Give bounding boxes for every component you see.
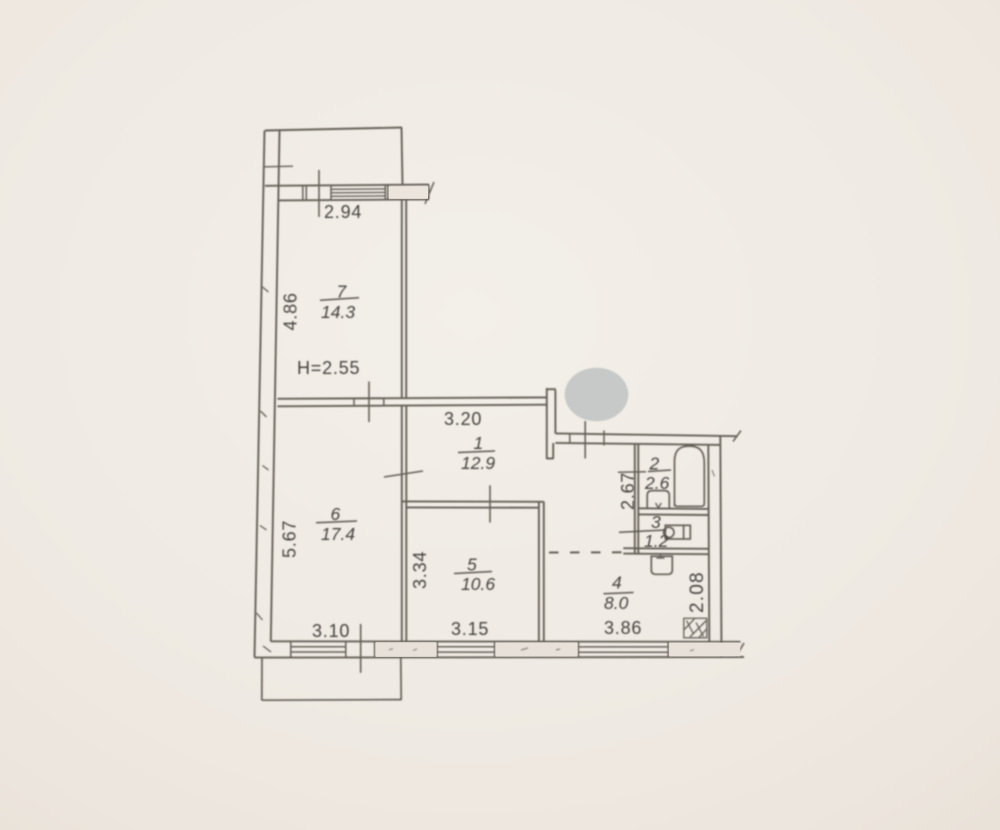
svg-text:1.2: 1.2 xyxy=(644,531,669,551)
svg-text:6: 6 xyxy=(331,504,341,524)
svg-text:1: 1 xyxy=(474,433,484,453)
svg-text:14.3: 14.3 xyxy=(321,302,355,322)
svg-text:3: 3 xyxy=(651,512,661,532)
svg-text:3.15: 3.15 xyxy=(451,619,489,639)
svg-text:12.9: 12.9 xyxy=(461,453,495,473)
svg-text:8.0: 8.0 xyxy=(604,593,629,613)
svg-text:17.4: 17.4 xyxy=(321,524,355,544)
svg-text:10.6: 10.6 xyxy=(461,574,495,594)
svg-text:4: 4 xyxy=(612,573,622,593)
svg-text:5: 5 xyxy=(467,555,477,575)
svg-text:2.67: 2.67 xyxy=(618,472,638,510)
svg-text:2.94: 2.94 xyxy=(324,202,362,222)
svg-text:4.86: 4.86 xyxy=(281,292,301,330)
svg-text:3.10: 3.10 xyxy=(312,621,350,641)
svg-text:5.67: 5.67 xyxy=(280,520,300,558)
svg-text:2.6: 2.6 xyxy=(644,473,670,493)
svg-text:H=2.55: H=2.55 xyxy=(297,358,360,378)
svg-text:3.20: 3.20 xyxy=(444,409,482,429)
svg-text:3.86: 3.86 xyxy=(604,618,642,638)
svg-text:3.34: 3.34 xyxy=(410,551,430,589)
svg-text:2.08: 2.08 xyxy=(687,571,708,613)
